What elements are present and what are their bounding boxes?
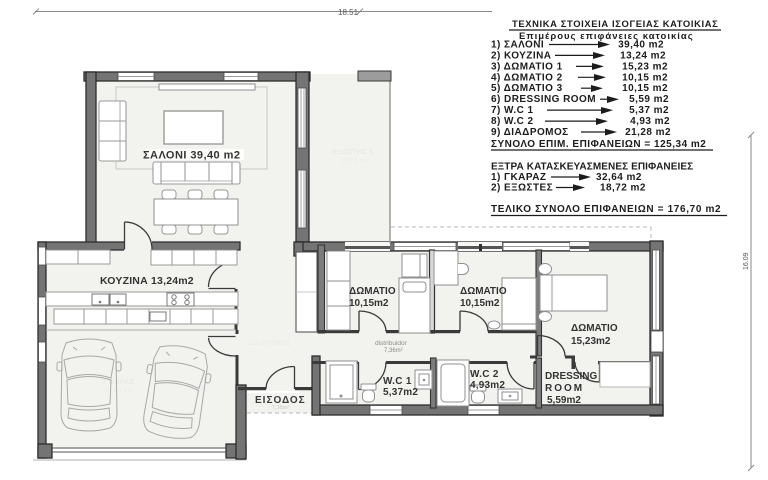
svg-text:39,40 m2: 39,40 m2 (618, 40, 664, 51)
svg-text:9) ΔΙΑΔΡΟΜΟΣ: 9) ΔΙΑΔΡΟΜΟΣ (491, 127, 569, 138)
svg-text:ΤΕΛΙΚΟ ΣΥΝΟΛΟ ΕΠΙΦΑΝΕΙΩΝ = 1: ΤΕΛΙΚΟ ΣΥΝΟΛΟ ΕΠΙΦΑΝΕΙΩΝ = 176,70 m2 (491, 204, 721, 215)
svg-text:2) ΚΟΥΖΙΝΑ: 2) ΚΟΥΖΙΝΑ (491, 50, 551, 61)
svg-text:1) ΓΚΑΡΑΖ: 1) ΓΚΑΡΑΖ (491, 172, 546, 183)
svg-text:18,72 m²: 18,72 m² (340, 158, 368, 165)
svg-text:ΔΙΑΔΡΟΜΟΣ: ΔΙΑΔΡΟΜΟΣ (248, 340, 291, 347)
svg-text:ROOM: ROOM (545, 383, 584, 394)
svg-text:5,37 m2: 5,37 m2 (629, 105, 669, 116)
svg-text:ΓΚΑΡΑΖ: ΓΚΑΡΑΖ (104, 377, 134, 386)
svg-text:15,23m2: 15,23m2 (571, 336, 611, 347)
svg-text:10,15m2: 10,15m2 (460, 298, 500, 309)
svg-text:5) ΔΩΜΑΤΙΟ 3: 5) ΔΩΜΑΤΙΟ 3 (491, 83, 563, 94)
svg-text:18,72 m2: 18,72 m2 (600, 183, 646, 194)
svg-text:5,59m2: 5,59m2 (547, 395, 581, 406)
svg-text:10,15 m2: 10,15 m2 (622, 72, 668, 83)
svg-text:1) ΣΑΛΟΝΙ: 1) ΣΑΛΟΝΙ (491, 40, 544, 51)
svg-text:21,28 m2: 21,28 m2 (625, 127, 671, 138)
svg-text:32,64 m²: 32,64 m² (104, 387, 132, 394)
svg-text:16.09: 16.09 (743, 252, 750, 270)
svg-text:W.C 2: W.C 2 (470, 369, 499, 380)
svg-text:Επιμέρους επιφάνειες κατοικία: Επιμέρους επιφάνειες κατοικίας (519, 31, 694, 42)
svg-text:8) W.C 2: 8) W.C 2 (491, 116, 534, 127)
svg-text:3) ΔΩΜΑΤΙΟ 1: 3) ΔΩΜΑΤΙΟ 1 (491, 61, 563, 72)
svg-text:15,23 m2: 15,23 m2 (622, 61, 668, 72)
svg-text:7,36m²: 7,36m² (384, 348, 403, 354)
svg-text:ΕΞΤΡΑ ΚΑΤΑΣΚΕΥΑΣΜΕΝΕΣ ΕΠΙΦΑΝΕΙ: ΕΞΤΡΑ ΚΑΤΑΣΚΕΥΑΣΜΕΝΕΣ ΕΠΙΦΑΝΕΙΕΣ (491, 162, 693, 173)
svg-text:6) DRESSING ROOM: 6) DRESSING ROOM (491, 94, 596, 105)
svg-text:ΕΞΩΣΤΗΣ 1: ΕΞΩΣΤΗΣ 1 (332, 147, 373, 156)
svg-text:13,24 m2: 13,24 m2 (620, 50, 666, 61)
svg-text:10,15m2: 10,15m2 (349, 298, 389, 309)
svg-text:W.C 1: W.C 1 (383, 376, 412, 387)
svg-text:ΔΩΜΑΤΙΟ: ΔΩΜΑΤΙΟ (571, 323, 618, 334)
svg-text:4,93 m2: 4,93 m2 (630, 116, 670, 127)
svg-text:10,15 m2: 10,15 m2 (622, 83, 668, 94)
svg-text:7) W.C 1: 7) W.C 1 (491, 105, 534, 116)
svg-text:18.51: 18.51 (338, 8, 359, 17)
svg-text:ΣΥΝΟΛΟ ΕΠΙΜ. ΕΠΙΦΑΝΕΙΩΝ = 125,: ΣΥΝΟΛΟ ΕΠΙΜ. ΕΠΙΦΑΝΕΙΩΝ = 125,34 m2 (491, 139, 706, 150)
svg-text:4,93m2: 4,93m2 (470, 380, 505, 391)
svg-text:ΔΩΜΑΤΙΟ: ΔΩΜΑΤΙΟ (460, 286, 507, 297)
svg-text:32,64 m2: 32,64 m2 (596, 172, 642, 183)
svg-text:ΣΑΛΟΝΙ 39,40 m2: ΣΑΛΟΝΙ 39,40 m2 (143, 150, 240, 162)
svg-text:7,36m²: 7,36m² (272, 405, 289, 411)
svg-text:DRESSING: DRESSING (545, 371, 597, 382)
svg-text:5,37m2: 5,37m2 (383, 387, 418, 398)
svg-text:ΔΩΜΑΤΙΟ: ΔΩΜΑΤΙΟ (349, 286, 396, 297)
svg-text:ΤΕΧΝΙΚΑ ΣΤΟΙΧΕΙΑ ΙΣΟΓΕΙΑΣ ΚΑΤ: ΤΕΧΝΙΚΑ ΣΤΟΙΧΕΙΑ ΙΣΟΓΕΙΑΣ ΚΑΤΟΙΚΙΑΣ (512, 18, 718, 29)
svg-text:5,59 m2: 5,59 m2 (629, 94, 669, 105)
svg-text:distribuidor: distribuidor (375, 340, 408, 347)
svg-text:ΚΟΥΖΙΝΑ 13,24m2: ΚΟΥΖΙΝΑ 13,24m2 (100, 275, 194, 287)
svg-text:2) ΕΞΩΣΤΕΣ: 2) ΕΞΩΣΤΕΣ (491, 183, 553, 194)
svg-text:4) ΔΩΜΑΤΙΟ 2: 4) ΔΩΜΑΤΙΟ 2 (491, 72, 563, 83)
